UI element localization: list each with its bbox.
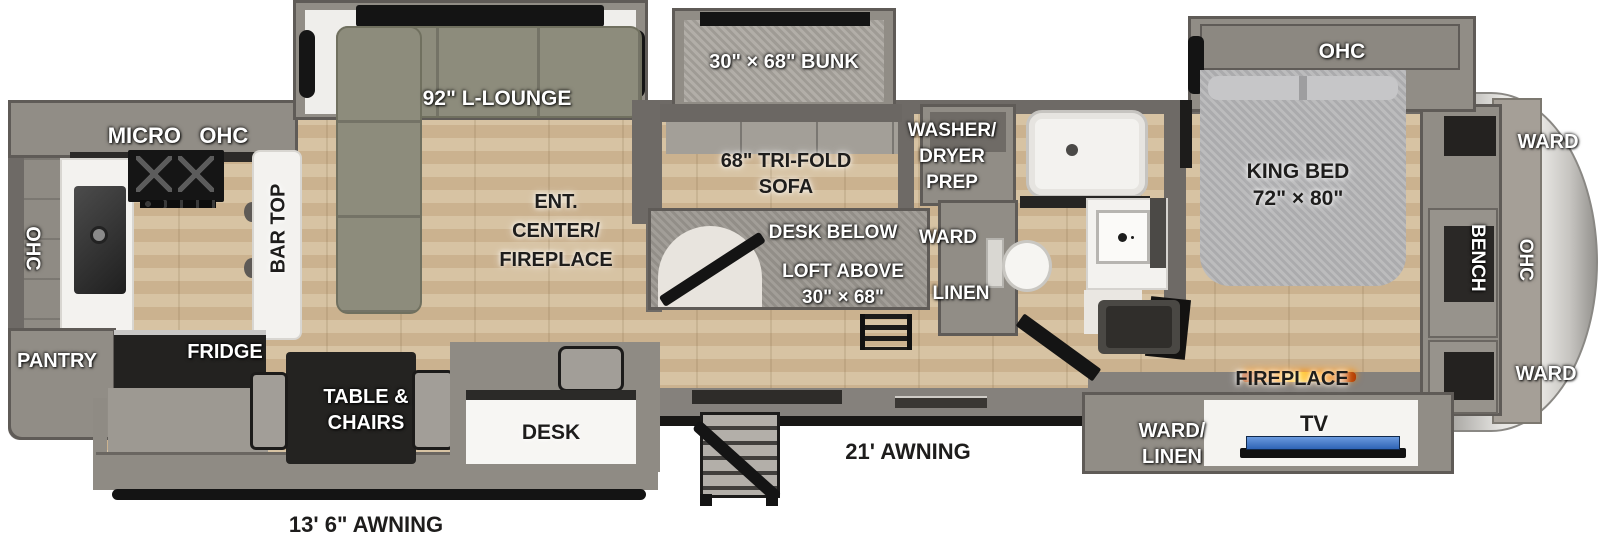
fridge-slide-base <box>108 388 268 456</box>
washer-line1: WASHER/ <box>908 120 997 141</box>
trifold-line2: SOFA <box>759 176 813 198</box>
step-foot-left <box>700 494 712 506</box>
rv-floorplan: MICRO OHC OHC BAR TOP PANTRY FRIDGE 92" … <box>0 0 1600 538</box>
table-chairs-label: TABLE &CHAIRS <box>266 384 466 436</box>
step-foot-right <box>766 494 778 506</box>
desk-label: DESK <box>451 420 651 446</box>
trifold-sofa-back <box>660 104 902 122</box>
awning-right-label: 21' AWNING <box>808 438 1008 466</box>
bathtub <box>1026 110 1148 198</box>
lounge-window-left <box>299 30 315 98</box>
fireplace-label: FIREPLACE <box>1192 367 1392 392</box>
bench-label: BENCH <box>1465 198 1489 318</box>
bath-mirror <box>1150 198 1166 268</box>
desk-chair <box>558 346 624 392</box>
washer-dryer-label: WASHER/DRYERPREP <box>872 118 1032 196</box>
bunk-floor-ladder <box>860 314 912 350</box>
bedroom-step-upper <box>1106 306 1172 348</box>
table-chairs-line2: CHAIRS <box>328 412 405 434</box>
fridge-label: FRIDGE <box>145 340 305 365</box>
bed-side-panel <box>1180 100 1192 168</box>
bed-ohc-label: OHC <box>1262 39 1422 65</box>
washer-line3: PREP <box>926 172 978 193</box>
ward-linen-line2: LINEN <box>1142 446 1202 468</box>
king-bed-label: KING BED72" × 80" <box>1198 158 1398 212</box>
desk-edge <box>466 390 636 400</box>
stove-burner-left <box>136 156 172 192</box>
stove-knobs <box>140 200 216 208</box>
tv-screen <box>1246 436 1400 450</box>
bunk-label: 30" × 68" BUNK <box>684 50 884 75</box>
lounge-label: 92" L-LOUNGE <box>397 86 597 112</box>
ward-linen-label: WARD/LINEN <box>1092 418 1252 470</box>
ent-center-line2: CENTER/ <box>512 220 600 242</box>
trifold-line1: 68" TRI-FOLD <box>721 150 852 172</box>
bath-ward-label: WARD <box>868 226 1028 250</box>
ward-linen-line1: WARD/ <box>1139 420 1206 442</box>
pantry-label: PANTRY <box>0 349 127 374</box>
loft-above-line2: 30" × 68" <box>802 287 884 308</box>
awning-left-label: 13' 6" AWNING <box>266 511 466 538</box>
king-bed-line1: KING BED <box>1247 160 1350 183</box>
bed-pillows <box>1208 76 1398 100</box>
stove-burner-right <box>178 156 214 192</box>
ent-center-line1: ENT. <box>534 191 577 213</box>
linen-label: LINEN <box>881 282 1041 306</box>
cap-ohc-label: OHC <box>1513 200 1537 320</box>
washer-line2: DRYER <box>919 146 985 167</box>
micro-ohc-label: MICRO OHC <box>98 122 258 150</box>
ent-center-label: ENT.CENTER/FIREPLACE <box>456 188 656 275</box>
sink-faucet <box>90 226 108 244</box>
vanity-faucet <box>1118 233 1127 242</box>
table-chairs-line1: TABLE & <box>323 386 408 408</box>
lounge-sofa-chaise <box>336 26 422 314</box>
ward-top-label: WARD <box>1468 130 1600 155</box>
slideout-bumper-rail <box>112 489 646 500</box>
ent-center-line3: FIREPLACE <box>499 249 612 271</box>
exterior-compartment <box>895 396 987 408</box>
ward-bottom-label: WARD <box>1466 362 1600 387</box>
entry-threshold <box>692 390 842 404</box>
bar-top-label: BAR TOP <box>267 169 292 289</box>
tv-label: TV <box>1234 410 1394 438</box>
loft-above-line1: LOFT ABOVE <box>782 261 904 282</box>
lounge-window-rear <box>356 5 604 27</box>
king-bed-line2: 72" × 80" <box>1253 187 1344 210</box>
bunk-window <box>700 12 870 26</box>
trifold-label: 68" TRI-FOLDSOFA <box>686 148 886 200</box>
bathtub-drain <box>1066 144 1078 156</box>
kitchen-ohc-label: OHC <box>20 189 45 309</box>
